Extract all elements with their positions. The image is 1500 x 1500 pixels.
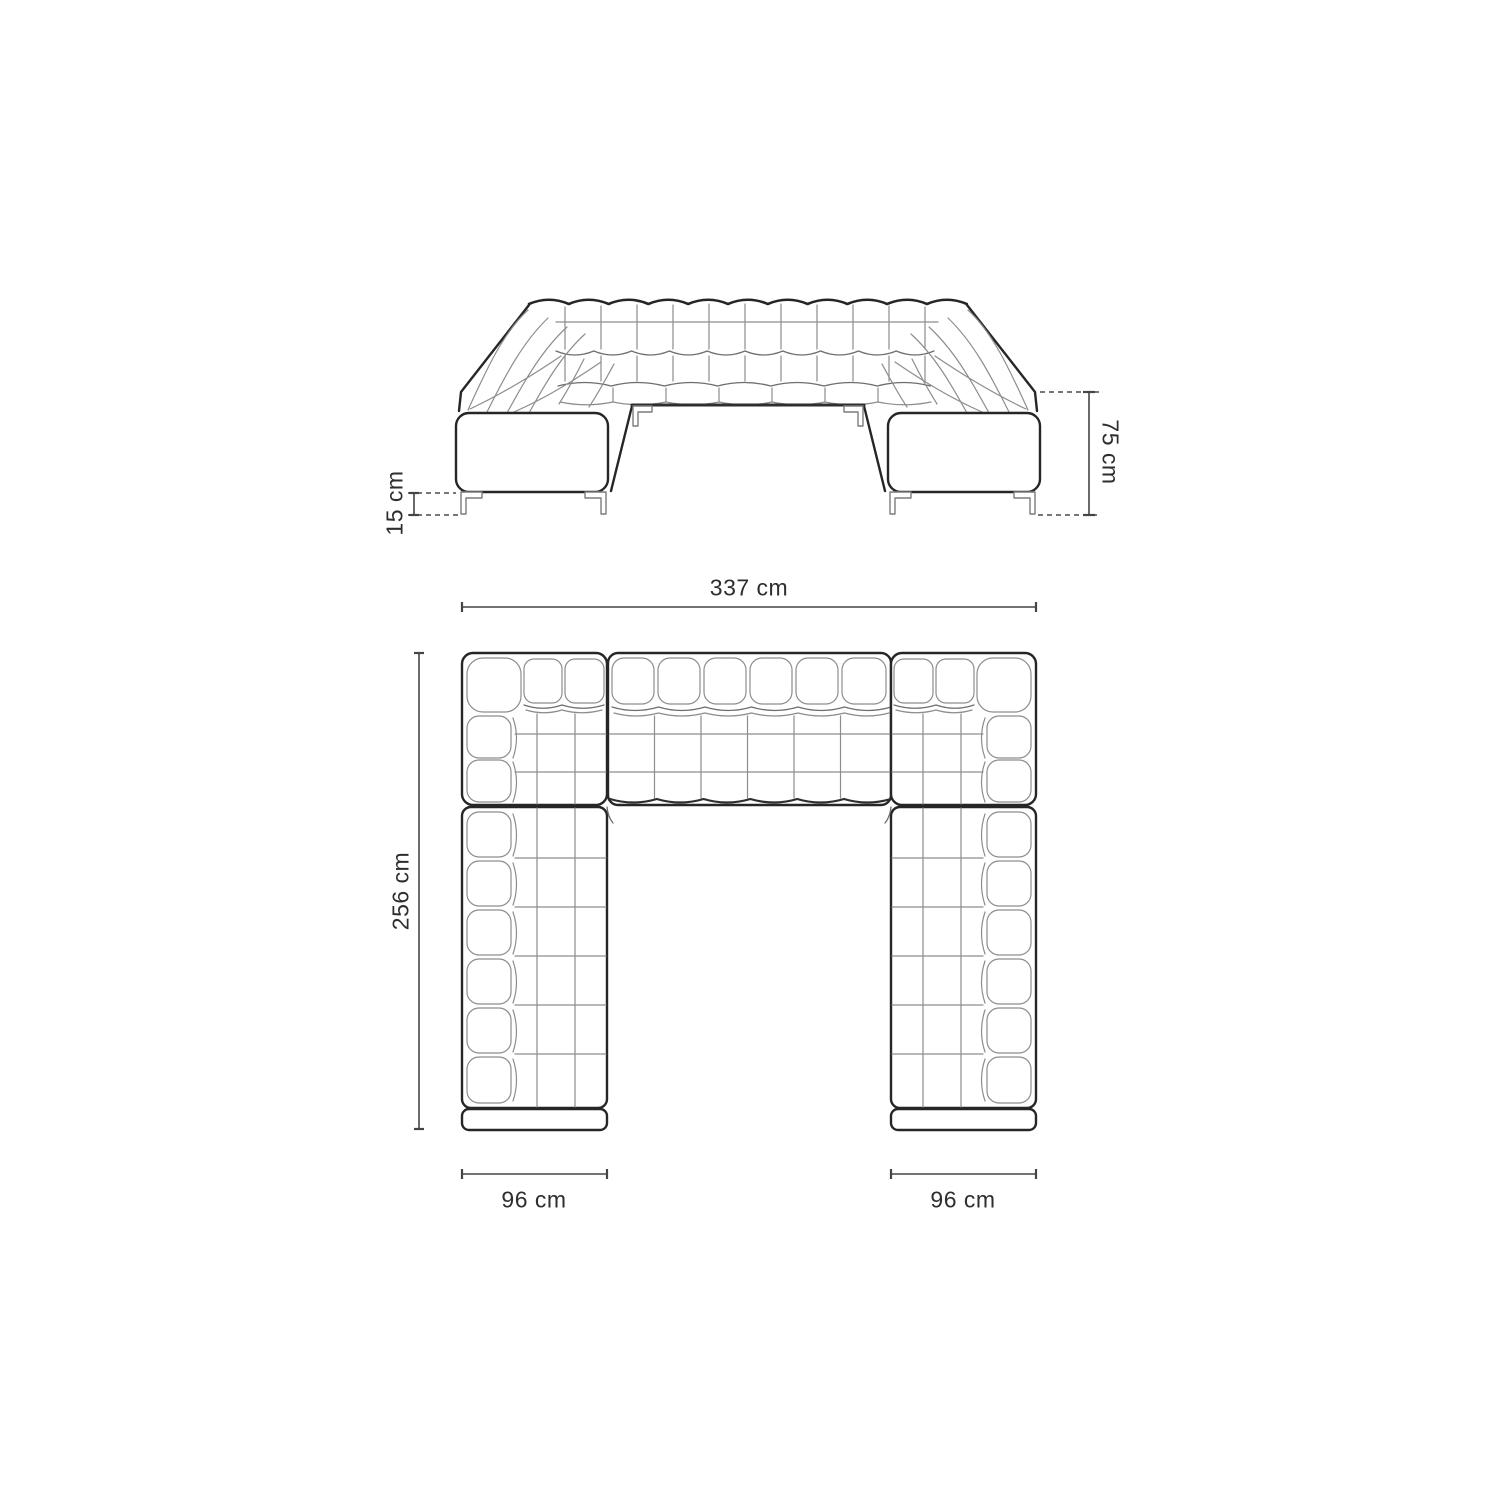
sofa-line-art xyxy=(0,0,1500,1500)
dim-front-leg-height xyxy=(408,493,462,515)
dim-front-height xyxy=(1038,392,1099,515)
dim-label-left-arm-width: 96 cm xyxy=(501,1187,566,1214)
front-left-section xyxy=(456,305,652,514)
dim-plan-depth xyxy=(414,653,424,1129)
dim-label-front-leg-height: 15 cm xyxy=(382,470,409,535)
dim-label-right-arm-width: 96 cm xyxy=(930,1187,995,1214)
dim-label-plan-width: 337 cm xyxy=(710,575,788,602)
front-elevation-view xyxy=(408,300,1099,515)
dim-plan-right-arm xyxy=(891,1169,1036,1179)
dim-plan-left-arm xyxy=(462,1169,607,1179)
dim-label-plan-depth: 256 cm xyxy=(388,852,415,930)
dim-label-front-height: 75 cm xyxy=(1097,419,1124,484)
dimension-drawing-page: 337 cm 256 cm 96 cm 96 cm 75 cm 15 cm xyxy=(0,0,1500,1500)
dim-plan-width xyxy=(462,602,1036,612)
plan-left-column xyxy=(462,653,613,1130)
top-plan-view xyxy=(414,602,1036,1179)
